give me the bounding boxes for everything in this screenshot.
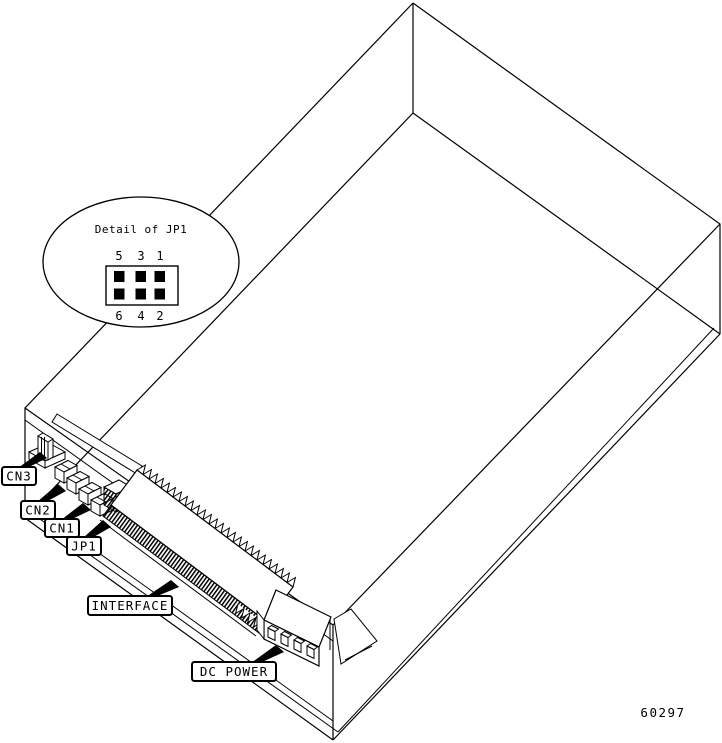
diagram-page: Detail of JP1 5 3 1 6 4 2 CN3 CN2 CN1: [0, 0, 722, 743]
cn3-label: CN3: [6, 469, 32, 484]
pin-number-3: 3: [137, 249, 144, 263]
jumper-pin-3: [136, 271, 147, 282]
pin-number-4: 4: [137, 309, 144, 323]
interface-label: INTERFACE: [92, 598, 169, 613]
jumper-pin-2: [155, 289, 166, 300]
pin-number-2: 2: [156, 309, 163, 323]
pin-number-6: 6: [115, 309, 122, 323]
detail-title: Detail of JP1: [95, 223, 188, 236]
pin-number-5: 5: [115, 249, 122, 263]
pin-number-1: 1: [156, 249, 163, 263]
jumper-pin-1: [155, 271, 166, 282]
cn1-label: CN1: [49, 521, 75, 536]
drive-isometric-diagram: Detail of JP1 5 3 1 6 4 2 CN3 CN2 CN1: [0, 0, 722, 743]
jumper-pin-5: [114, 271, 125, 282]
cn2-label: CN2: [25, 503, 51, 518]
jumper-pin-6: [114, 289, 125, 300]
jp1-detail-bubble: Detail of JP1 5 3 1 6 4 2: [43, 197, 239, 327]
jumper-pin-4: [136, 289, 147, 300]
dc-power-label: DC POWER: [200, 664, 268, 679]
jp1-label: JP1: [71, 539, 97, 554]
figure-number: 60297: [640, 705, 685, 720]
